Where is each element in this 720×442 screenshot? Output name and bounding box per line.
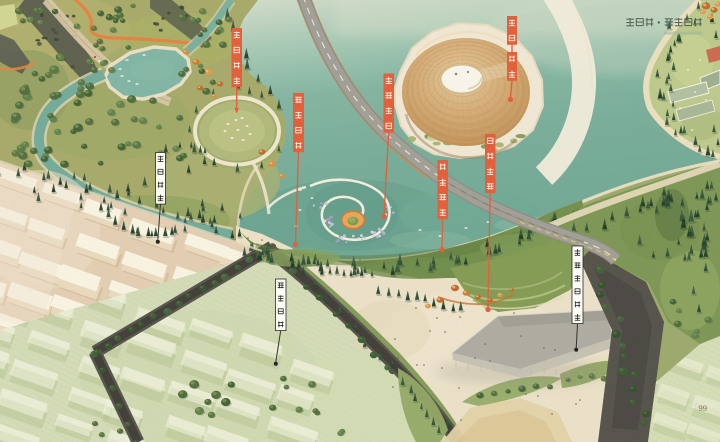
svg-text:99: 99: [699, 403, 708, 413]
